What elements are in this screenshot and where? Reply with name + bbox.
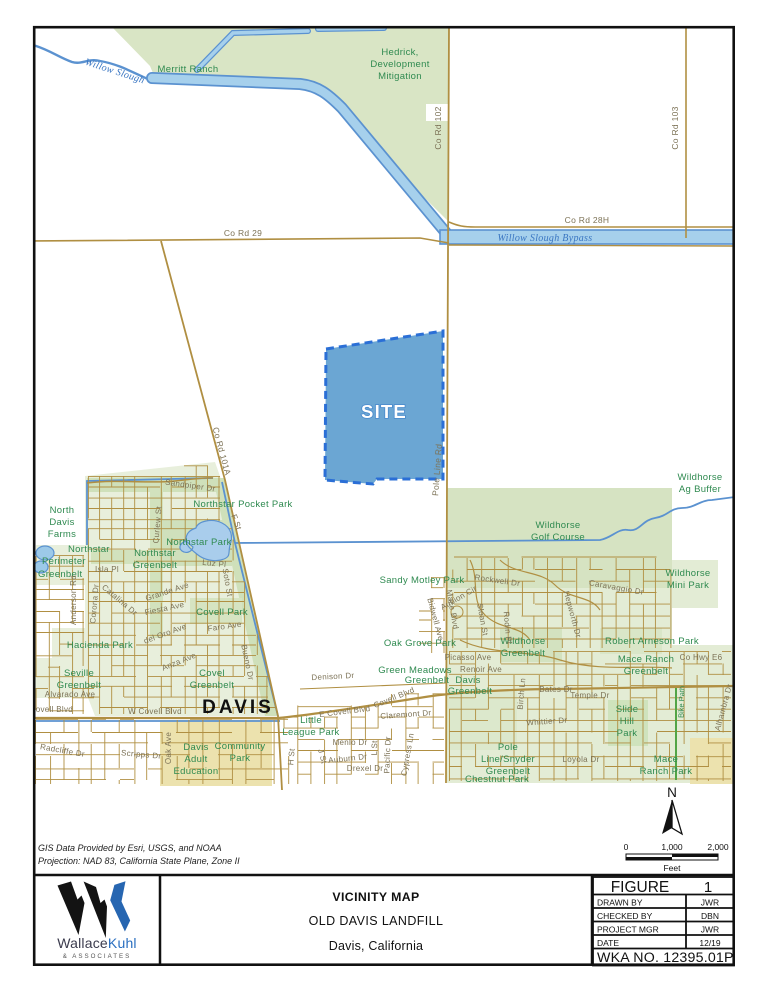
svg-text:Oak Ave: Oak Ave [164,732,173,764]
svg-text:H St: H St [286,748,296,766]
svg-text:JWR: JWR [701,925,719,935]
svg-text:CHECKED BY: CHECKED BY [597,911,653,921]
svg-text:Mace: Mace [654,754,678,765]
svg-text:DRAWN BY: DRAWN BY [597,898,643,908]
svg-text:2,000: 2,000 [707,842,729,852]
svg-text:W Covell Blvd: W Covell Blvd [128,707,182,716]
svg-text:League Park: League Park [282,727,339,738]
svg-text:Slide: Slide [616,704,639,715]
svg-text:SITE: SITE [361,401,407,422]
svg-text:WallaceKuhl: WallaceKuhl [57,935,137,951]
svg-text:PROJECT MGR: PROJECT MGR [597,925,659,935]
svg-text:Development: Development [370,59,429,70]
svg-text:FIGURE: FIGURE [611,879,670,896]
svg-text:Davis: Davis [183,742,208,753]
svg-text:Co Hwy E6: Co Hwy E6 [680,653,723,662]
svg-text:Wildhorse: Wildhorse [536,520,581,531]
svg-text:Chestnut Park: Chestnut Park [465,774,529,785]
svg-text:Farms: Farms [48,529,76,540]
svg-text:Co Rd 28H: Co Rd 28H [565,215,610,225]
svg-text:Greenbelt: Greenbelt [448,686,492,697]
svg-text:Ranch Park: Ranch Park [640,766,693,777]
svg-text:Lovell Blvd: Lovell Blvd [31,705,73,714]
svg-text:Park: Park [617,728,638,739]
svg-text:Ag Buffer: Ag Buffer [679,484,721,495]
svg-text:Davis, California: Davis, California [329,939,423,953]
svg-text:VICINITY MAP: VICINITY MAP [332,890,419,904]
svg-text:Greenbelt: Greenbelt [133,560,177,571]
svg-text:N: N [667,785,677,800]
svg-text:Anderson Rd: Anderson Rd [69,575,78,625]
svg-text:Greenbelt: Greenbelt [624,666,668,677]
svg-text:Community: Community [215,741,266,752]
svg-text:Mini Park: Mini Park [667,580,709,591]
svg-text:GIS Data Provided by Esri, USG: GIS Data Provided by Esri, USGS, and NOA… [38,843,222,853]
svg-text:12/19: 12/19 [699,938,721,948]
svg-text:Bike Path: Bike Path [676,686,686,718]
svg-text:Co Rd 103: Co Rd 103 [670,106,680,149]
svg-text:Menlo Dr: Menlo Dr [333,738,368,747]
svg-text:Drexel Dr: Drexel Dr [347,764,384,773]
svg-text:Pole: Pole [498,742,518,753]
svg-text:Alvarado Ave: Alvarado Ave [45,690,96,699]
svg-text:Northstar: Northstar [68,544,110,555]
svg-text:Davis: Davis [455,675,480,686]
svg-text:0: 0 [624,842,629,852]
svg-text:Covel: Covel [199,668,225,679]
svg-text:Temple Dr: Temple Dr [570,691,609,700]
svg-text:Projection: NAD 83, California: Projection: NAD 83, California State Pla… [38,856,240,866]
svg-text:Robert Arneson Park: Robert Arneson Park [605,636,699,647]
svg-text:North: North [50,505,75,516]
svg-text:Feet: Feet [663,863,681,873]
svg-text:Perimeter: Perimeter [42,556,86,567]
svg-text:Hacienda Park: Hacienda Park [67,640,133,651]
svg-text:DATE: DATE [597,938,619,948]
svg-text:Co Rd 29: Co Rd 29 [224,228,262,238]
svg-text:Education: Education [174,766,219,777]
svg-text:Park: Park [230,753,251,764]
svg-text:Mitigation: Mitigation [378,71,422,82]
svg-text:Hill: Hill [620,716,634,727]
svg-text:Merritt Ranch: Merritt Ranch [158,64,219,75]
svg-text:Greenbelt: Greenbelt [405,675,449,686]
svg-text:Northstar Park: Northstar Park [166,537,231,548]
svg-text:Northstar: Northstar [134,548,176,559]
svg-text:Greenbelt: Greenbelt [501,648,545,659]
svg-text:Hedrick,: Hedrick, [381,47,418,58]
svg-text:OLD DAVIS LANDFILL: OLD DAVIS LANDFILL [309,914,444,928]
svg-text:Seville: Seville [64,668,94,679]
svg-text:Line/Snyder: Line/Snyder [481,754,535,765]
svg-text:DBN: DBN [701,911,719,921]
svg-text:Oak Grove Park: Oak Grove Park [384,638,456,649]
svg-text:Co Rd 102: Co Rd 102 [433,106,443,149]
svg-text:Golf Course: Golf Course [531,532,585,543]
svg-text:Northstar Pocket Park: Northstar Pocket Park [193,499,292,510]
svg-text:Isla Pl: Isla Pl [95,565,119,574]
svg-text:Mace Ranch: Mace Ranch [618,654,674,665]
svg-text:Adult: Adult [184,754,207,765]
svg-text:1,000: 1,000 [661,842,683,852]
svg-text:1: 1 [704,879,712,896]
svg-text:DAVIS: DAVIS [202,697,274,718]
svg-text:& ASSOCIATES: & ASSOCIATES [63,953,132,960]
svg-text:L St: L St [370,740,380,756]
svg-text:Sandy Motley Park: Sandy Motley Park [380,575,465,586]
svg-text:Picasso Ave: Picasso Ave [445,653,492,662]
svg-text:Willow Slough Bypass: Willow Slough Bypass [498,233,593,244]
svg-text:Renoir Ave: Renoir Ave [460,665,502,674]
svg-text:Wildhorse: Wildhorse [666,568,711,579]
svg-text:Pacific Dr: Pacific Dr [382,736,392,774]
svg-text:Davis: Davis [49,517,74,528]
svg-text:Greenbelt: Greenbelt [190,680,234,691]
svg-text:JWR: JWR [701,898,719,908]
svg-text:Wildhorse: Wildhorse [678,472,723,483]
svg-text:Bates Dr: Bates Dr [539,685,573,694]
svg-text:Loyola Dr: Loyola Dr [563,755,600,764]
svg-text:Covell Park: Covell Park [196,607,248,618]
